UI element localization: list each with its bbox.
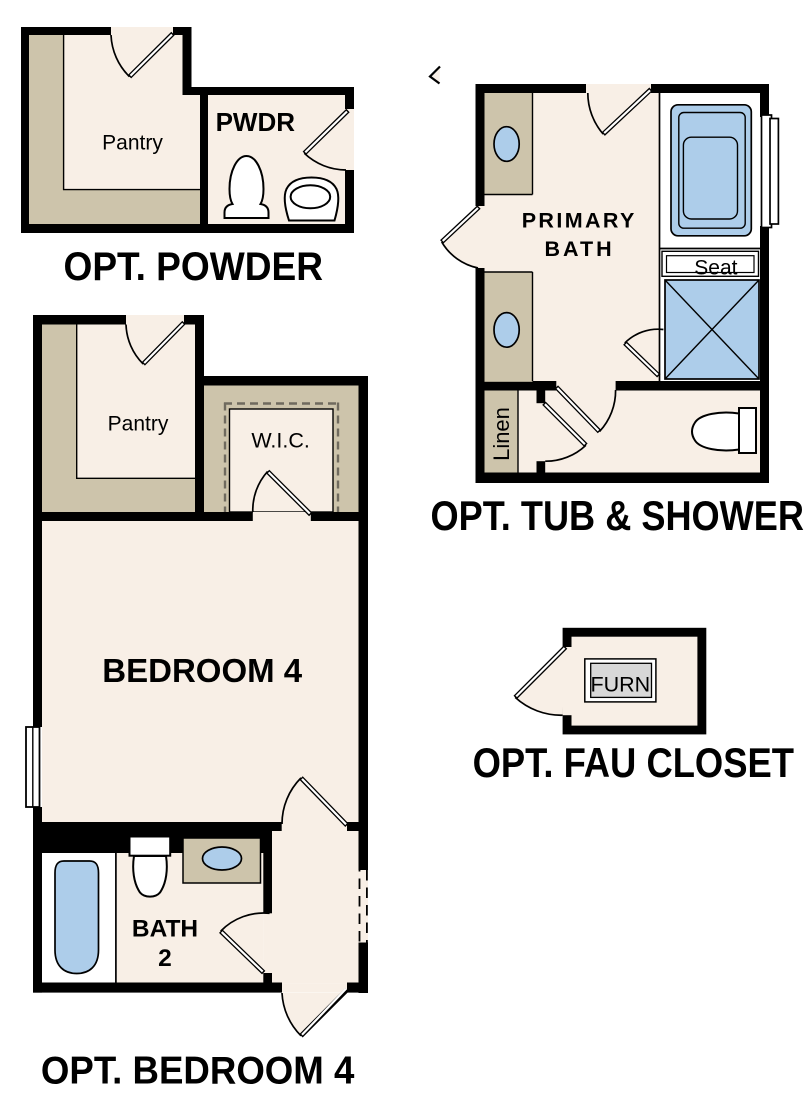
svg-text:Seat: Seat — [694, 257, 737, 280]
svg-text:OPT. TUB & SHOWER: OPT. TUB & SHOWER — [431, 492, 805, 539]
svg-text:FURN: FURN — [590, 673, 650, 697]
svg-text:Pantry: Pantry — [102, 132, 163, 155]
svg-text:OPT. POWDER: OPT. POWDER — [64, 245, 324, 289]
svg-text:PWDR: PWDR — [216, 107, 296, 137]
svg-text:OPT. BEDROOM 4: OPT. BEDROOM 4 — [41, 1050, 355, 1093]
svg-text:2: 2 — [158, 945, 172, 972]
svg-text:Linen: Linen — [489, 407, 514, 461]
svg-text:BEDROOM 4: BEDROOM 4 — [102, 652, 303, 689]
svg-text:W.I.C.: W.I.C. — [251, 429, 310, 453]
svg-text:BATH: BATH — [132, 916, 198, 943]
svg-text:OPT. FAU CLOSET: OPT. FAU CLOSET — [473, 739, 795, 786]
svg-text:Pantry: Pantry — [108, 413, 169, 436]
svg-text:PRIMARY: PRIMARY — [522, 209, 635, 233]
